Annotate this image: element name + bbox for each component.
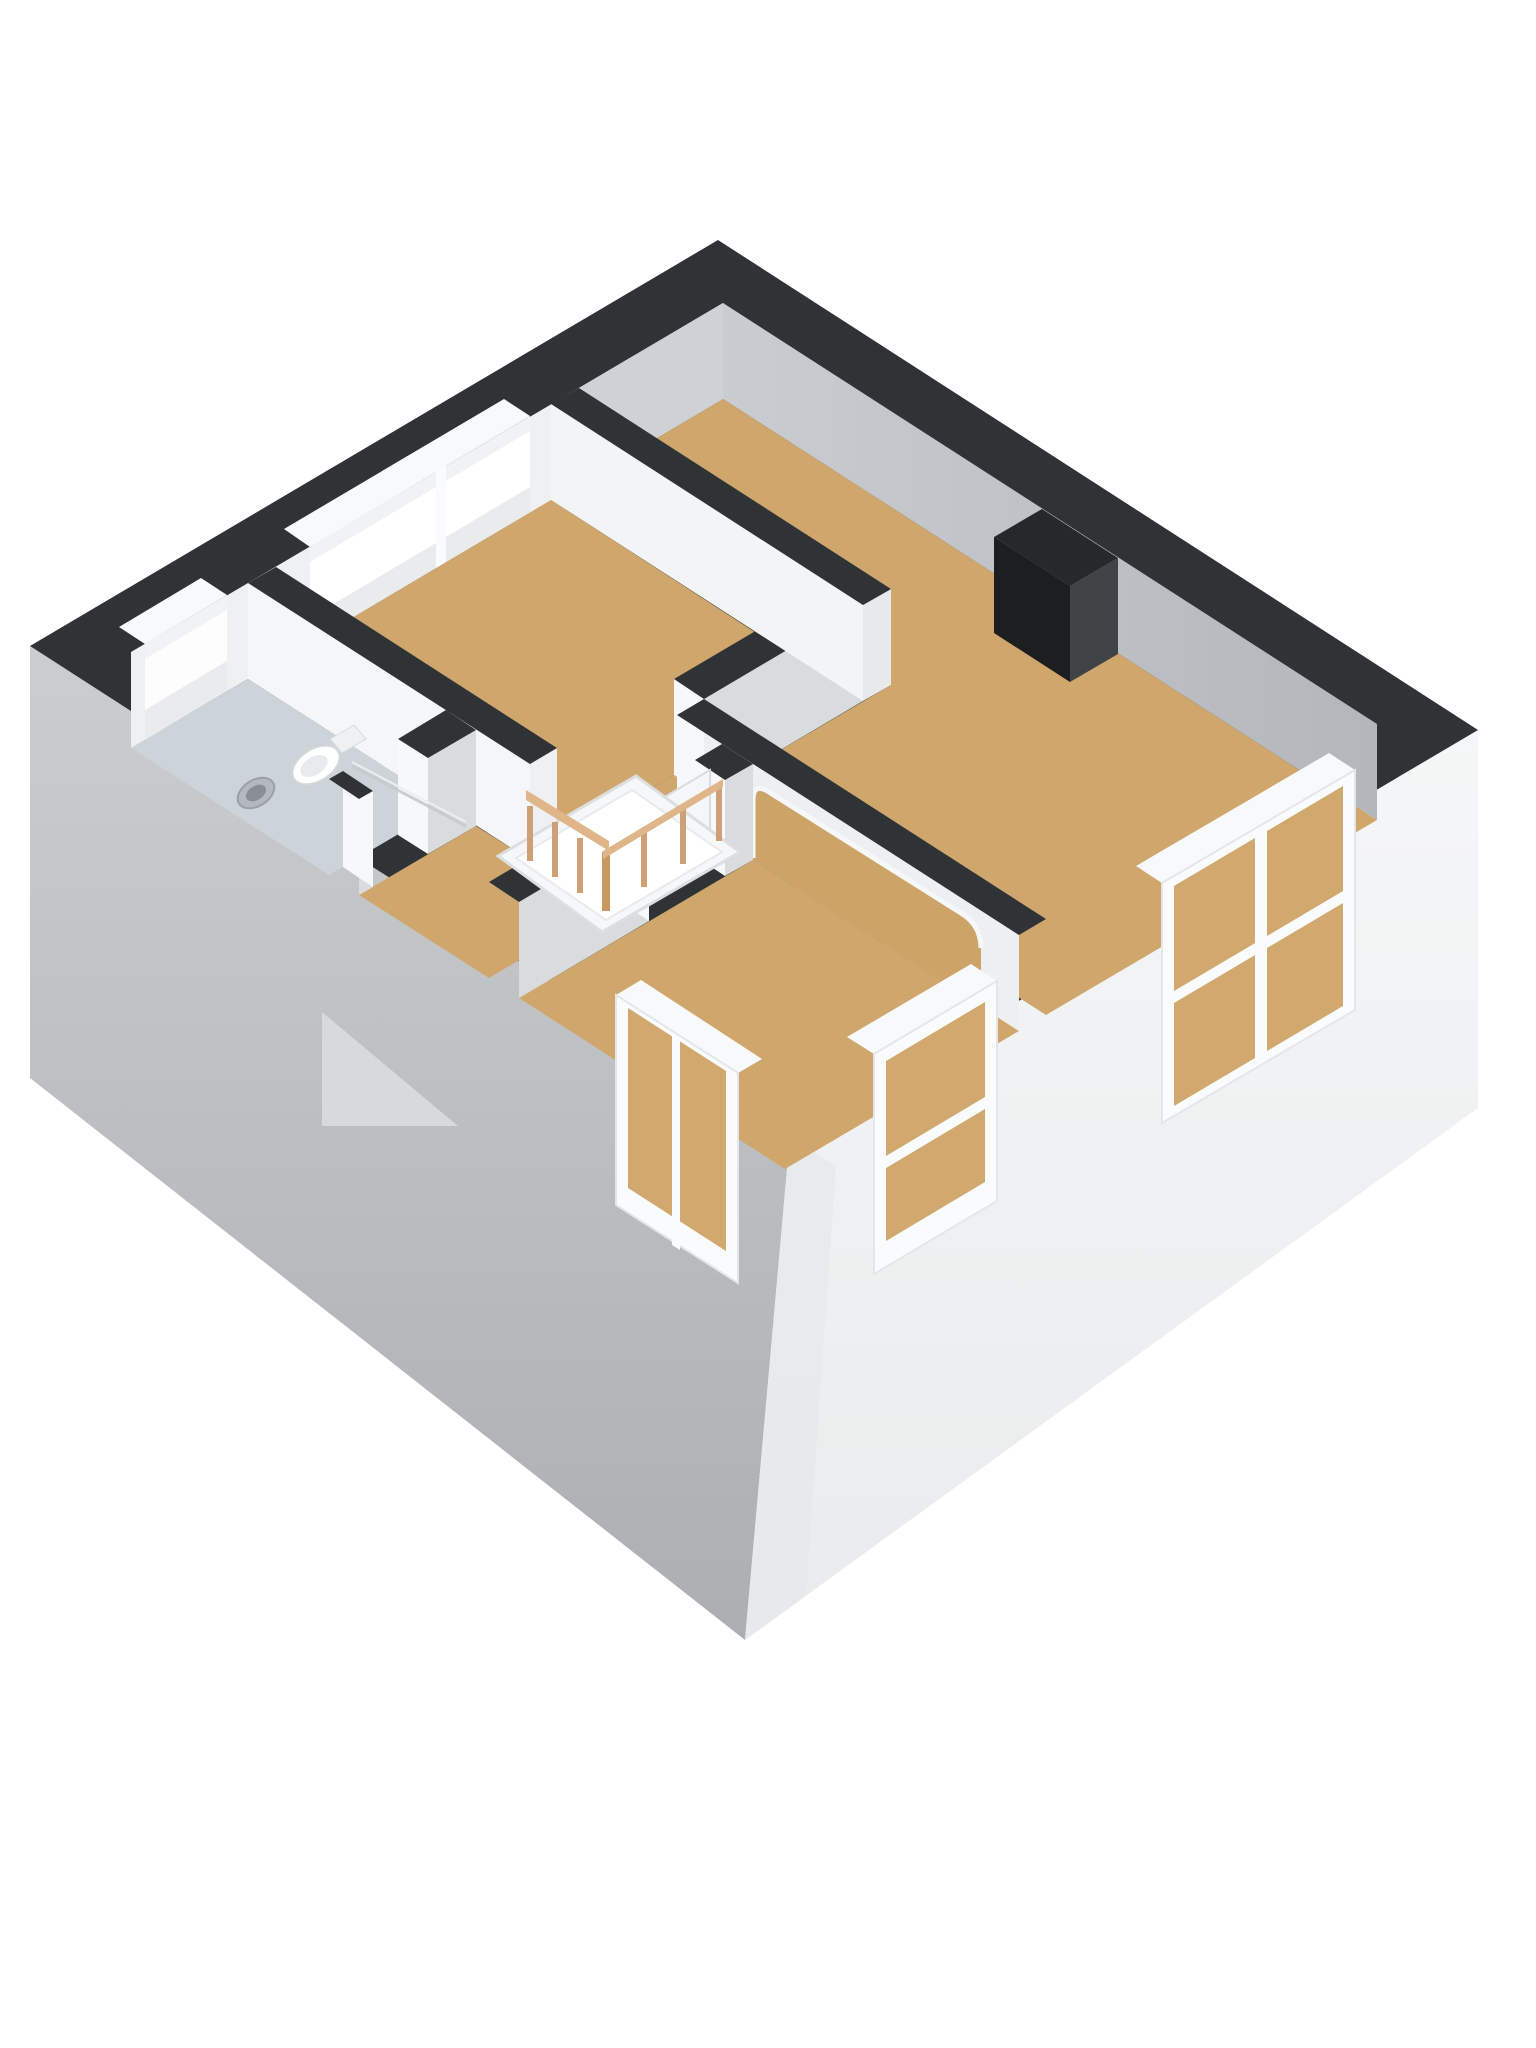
railing-post-2 (552, 822, 558, 877)
railing-post-1 (527, 806, 533, 861)
sw-window-mullion (672, 1035, 680, 1250)
railing-post-4 (641, 832, 647, 887)
railing-post-3 (577, 838, 583, 893)
railing-post-5 (680, 809, 686, 864)
floor-plan-3d (0, 0, 1536, 2048)
railing-post-6 (716, 786, 722, 841)
big-window-mullion (436, 464, 446, 568)
wall-divider-cap (863, 589, 891, 701)
floor-plan-canvas (0, 0, 1536, 2048)
scene-shapes (30, 240, 1478, 1640)
railing-post-corner (602, 852, 610, 911)
